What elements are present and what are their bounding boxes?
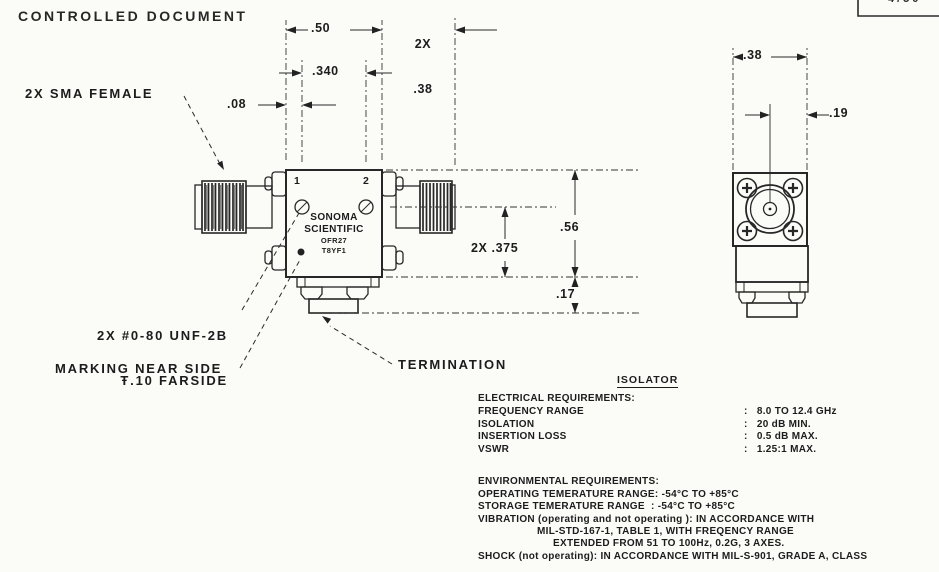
callout-marking: MARKING NEAR SIDE bbox=[55, 361, 222, 376]
electrical-requirements-title: ELECTRICAL REQUIREMENTS: bbox=[478, 393, 635, 404]
isolator-heading: ISOLATOR bbox=[617, 374, 678, 388]
callout-termination: TERMINATION bbox=[398, 357, 507, 372]
callout-unf-line1: 2X #0-80 UNF-2B bbox=[38, 328, 228, 343]
termination-end bbox=[736, 282, 808, 317]
spec-label-insertion-loss: INSERTION LOSS bbox=[478, 431, 567, 442]
spec-label-vswr: VSWR bbox=[478, 444, 509, 455]
dim-connector-qty: 2X bbox=[404, 37, 442, 52]
port-1-label: 1 bbox=[294, 175, 300, 187]
environmental-requirements-title: ENVIRONMENTAL REQUIREMENTS: bbox=[478, 476, 659, 487]
left-sma-connector bbox=[195, 172, 286, 270]
spec-label-isolation: ISOLATION bbox=[478, 419, 534, 430]
dim-body-height: .56 bbox=[560, 220, 579, 234]
env-line-operating-temp: OPERATING TEMERATURE RANGE: -54°C TO +85… bbox=[478, 489, 739, 500]
dim-end-width: .38 bbox=[743, 48, 762, 62]
manufacturer-marking: SONOMA SCIENTIFIC OFR27 T8YF1 bbox=[291, 212, 377, 255]
titleblock-text-fragment: 4/50 bbox=[888, 0, 937, 10]
extension-lines bbox=[286, 18, 807, 313]
brand-line1: SONOMA bbox=[291, 212, 377, 224]
brand-line3: OFR27 bbox=[291, 236, 377, 246]
dim-screw-offset: .08 bbox=[227, 97, 246, 111]
flange-screw bbox=[738, 222, 757, 241]
dim-end-half-width: .19 bbox=[829, 106, 848, 120]
spec-value-vswr: : 1.25:1 MAX. bbox=[744, 444, 816, 455]
brand-line4: T8YF1 bbox=[291, 246, 377, 256]
flange-screw bbox=[738, 179, 757, 198]
right-sma-connector bbox=[382, 172, 455, 270]
dim-body-width: .50 bbox=[311, 21, 330, 35]
callout-sma-female: 2X SMA FEMALE bbox=[25, 86, 153, 101]
env-line-storage-temp: STORAGE TEMERATURE RANGE : -54°C TO +85°… bbox=[478, 501, 735, 512]
dim-screw-spacing: .340 bbox=[312, 64, 339, 78]
termination-front bbox=[297, 277, 379, 313]
spec-value-insertion-loss: : 0.5 dB MAX. bbox=[744, 431, 818, 442]
knurl-hatch-left bbox=[205, 183, 243, 231]
spec-value-frequency-range: : 8.0 TO 12.4 GHz bbox=[744, 406, 837, 417]
titleblock-text: 4/50 bbox=[888, 0, 937, 5]
spec-label-frequency-range: FREQUENCY RANGE bbox=[478, 406, 584, 417]
end-view bbox=[733, 104, 808, 317]
dim-screw-to-base: 2X .375 bbox=[471, 241, 518, 255]
env-line-vibration-cont1: MIL-STD-167-1, TABLE 1, WITH FREQENCY RA… bbox=[537, 526, 794, 537]
dim-connector-length: 2X .38 bbox=[404, 7, 442, 127]
flange-screw bbox=[784, 179, 803, 198]
flange-screw bbox=[784, 222, 803, 241]
drawing-sheet: CONTROLLED DOCUMENT 4/50 2X SMA FEMALE 2… bbox=[0, 0, 939, 572]
spec-value-isolation: : 20 dB MIN. bbox=[744, 419, 811, 430]
dimension-lines bbox=[258, 30, 829, 313]
env-line-shock: SHOCK (not operating): IN ACCORDANCE WIT… bbox=[478, 551, 867, 562]
env-line-vibration: VIBRATION (operating and not operating )… bbox=[478, 514, 814, 525]
callout-unf-thread: 2X #0-80 UNF-2B Ŧ.10 FARSIDE bbox=[38, 298, 228, 418]
dim-connector-len: .38 bbox=[404, 82, 442, 97]
env-line-vibration-cont2: EXTENDED FROM 51 TO 100Hz, 0.2G, 3 AXES. bbox=[553, 538, 785, 549]
port-2-label: 2 bbox=[363, 175, 369, 187]
controlled-document-stamp: CONTROLLED DOCUMENT bbox=[18, 8, 248, 24]
dim-termination-height: .17 bbox=[556, 287, 575, 301]
brand-line2: SCIENTIFIC bbox=[291, 224, 377, 236]
